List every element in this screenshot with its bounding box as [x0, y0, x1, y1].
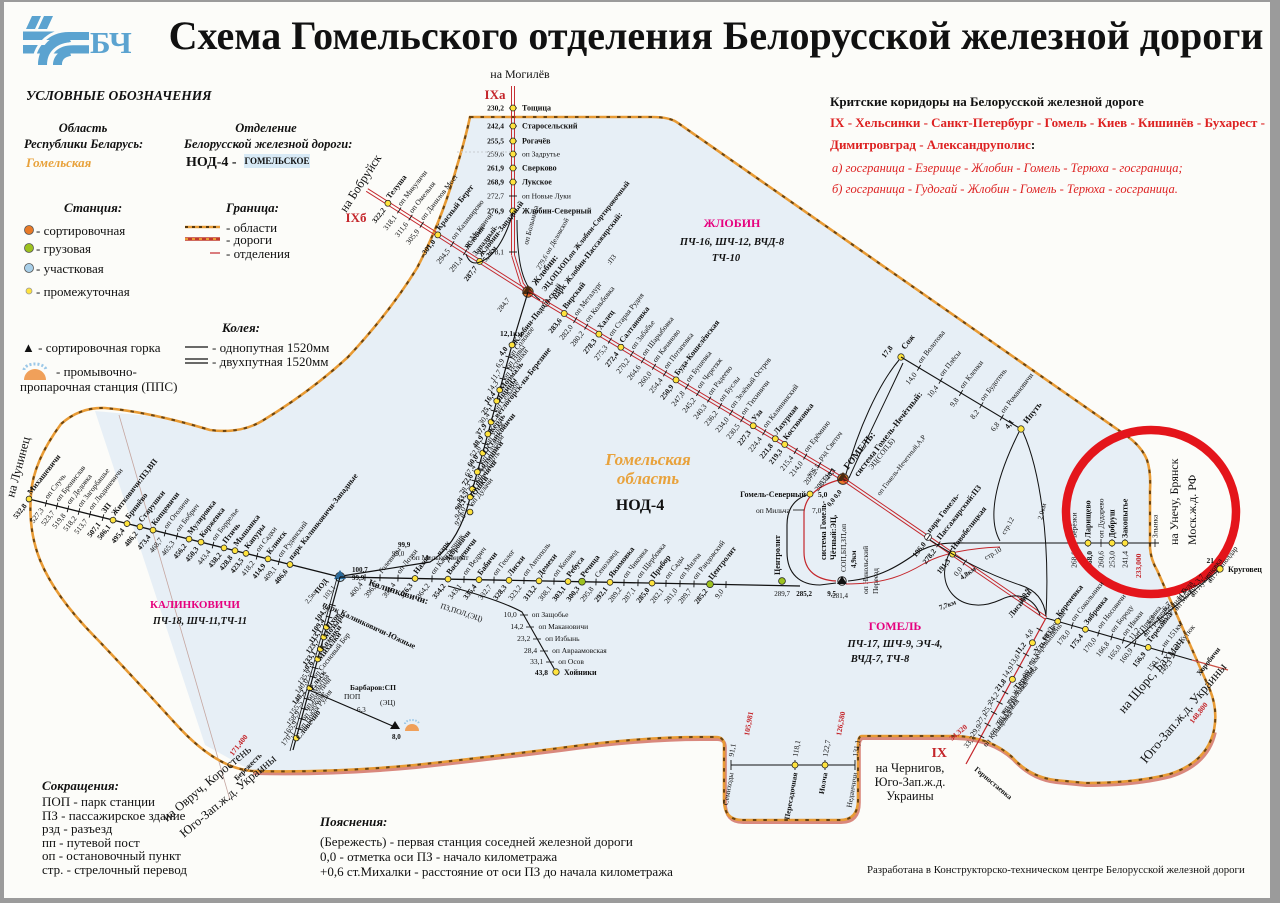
svg-text:99,9: 99,9 [398, 541, 411, 549]
svg-text:оп Мильча: оп Мильча [756, 506, 791, 515]
svg-text:Старосельский: Старосельский [522, 122, 578, 131]
svg-text:оп Новые Луки: оп Новые Луки [522, 192, 571, 201]
svg-text:14,2: 14,2 [510, 622, 523, 631]
svg-text:5,0: 5,0 [818, 490, 828, 499]
svg-text:область: область [617, 469, 680, 488]
svg-text:на Унечу, Брянск: на Унечу, Брянск [1167, 458, 1181, 545]
svg-text:IXб: IXб [346, 210, 367, 225]
svg-text:Закопытье: Закопытье [1121, 498, 1130, 538]
svg-text:253,0: 253,0 [1108, 551, 1117, 568]
svg-text:на Чернигов,: на Чернигов, [876, 761, 945, 775]
svg-text:4,9км: 4,9км [850, 550, 858, 568]
svg-text:230,2: 230,2 [487, 104, 504, 113]
svg-text:12,1км: 12,1км [500, 329, 523, 338]
svg-text:Юго-Зап.ж.д.: Юго-Зап.ж.д. [875, 775, 946, 789]
svg-text:оп Избынь: оп Избынь [545, 634, 580, 643]
svg-text:Гомельская: Гомельская [604, 450, 691, 469]
svg-text:241,4: 241,4 [1121, 551, 1130, 568]
svg-text:ГОМЕЛЬ: ГОМЕЛЬ [869, 619, 922, 633]
svg-text:8,0: 8,0 [392, 733, 401, 741]
svg-text:272,7: 272,7 [487, 192, 504, 201]
svg-text:IXa: IXa [485, 87, 506, 102]
svg-text:Круговец: Круговец [1228, 565, 1262, 574]
svg-text:оп Авраамовская: оп Авраамовская [552, 646, 607, 655]
svg-text:ВЧД-7, ТЧ-8: ВЧД-7, ТЧ-8 [850, 654, 910, 665]
svg-text:ПЧ-17, ШЧ-9, ЭЧ-4,: ПЧ-17, ШЧ-9, ЭЧ-4, [846, 639, 942, 650]
svg-text:ТЧ-10: ТЧ-10 [712, 253, 741, 264]
svg-text:оп Осов: оп Осов [558, 657, 584, 666]
svg-text:255,5: 255,5 [487, 137, 504, 146]
svg-text:33,1: 33,1 [530, 657, 543, 666]
svg-text:система Гомель-: система Гомель- [819, 500, 828, 560]
svg-text:242,4: 242,4 [487, 122, 504, 131]
svg-text:Рогачёв: Рогачёв [522, 137, 551, 146]
svg-text:НОД-4: НОД-4 [616, 497, 664, 514]
svg-text:КАЛИНКОВИЧИ: КАЛИНКОВИЧИ [150, 599, 240, 611]
svg-text:Сверково: Сверково [522, 164, 557, 173]
svg-text:259,6: 259,6 [487, 150, 504, 159]
svg-text:оп Защобье: оп Защобье [532, 610, 569, 619]
svg-text:оп Никольский: оп Никольский [861, 546, 870, 594]
svg-text:43,8: 43,8 [535, 668, 548, 677]
svg-text:Барбаров:СП: Барбаров:СП [350, 683, 396, 692]
svg-text:268,9: 268,9 [487, 178, 504, 187]
svg-text:БЧ: БЧ [90, 25, 132, 60]
svg-text:Гомель-Северный: Гомель-Северный [740, 490, 806, 499]
svg-text:100,7: 100,7 [352, 566, 368, 574]
svg-text:оп Макановичи: оп Макановичи [539, 622, 589, 631]
svg-text:СОП,БП,ЗП,оп: СОП,БП,ЗП,оп [839, 524, 848, 572]
svg-text:Хойники: Хойники [564, 668, 597, 677]
svg-text:Лукское: Лукское [522, 178, 552, 187]
svg-text:23,2: 23,2 [517, 634, 530, 643]
svg-text:Тощица: Тощица [522, 104, 551, 113]
svg-text:оп Дударево: оп Дударево [1097, 498, 1106, 538]
svg-text:оп Задрутье: оп Задрутье [522, 150, 561, 159]
svg-text:289,7: 289,7 [774, 590, 790, 598]
svg-text:ПЧ-16, ШЧ-12, ВЧД-8: ПЧ-16, ШЧ-12, ВЧД-8 [679, 237, 785, 248]
svg-text:6,3: 6,3 [357, 706, 366, 714]
svg-text:28,4: 28,4 [524, 646, 537, 655]
svg-text:Центролит: Центролит [773, 535, 782, 575]
svg-text:281,4: 281,4 [832, 592, 848, 600]
svg-text:на Могилёв: на Могилёв [490, 67, 550, 81]
svg-text:(ЭЦ): (ЭЦ) [380, 698, 396, 707]
svg-text:Моск.ж.д. РФ: Моск.ж.д. РФ [1185, 475, 1199, 545]
svg-text:ПОП: ПОП [344, 692, 361, 701]
svg-text:ЖЛОБИН: ЖЛОБИН [704, 216, 761, 230]
svg-text:ПЧ-18, ШЧ-11,ТЧ-11: ПЧ-18, ШЧ-11,ТЧ-11 [152, 616, 247, 627]
svg-text:233,000: 233,000 [1134, 553, 1143, 578]
svg-text:10,0: 10,0 [504, 610, 517, 619]
svg-text:260,6: 260,6 [1097, 551, 1106, 568]
svg-text:261,9: 261,9 [487, 164, 504, 173]
svg-text:IX: IX [931, 746, 947, 761]
svg-text:Добруш: Добруш [1108, 509, 1117, 538]
svg-text:285,2: 285,2 [796, 590, 812, 598]
svg-text:Украины: Украины [886, 789, 934, 803]
svg-text:Чётный:ЭЦ,: Чётный:ЭЦ, [829, 515, 838, 560]
svg-text:Злынка: Злынка [1151, 514, 1160, 538]
svg-text:21: 21 [1207, 556, 1215, 565]
svg-text:Ларищево: Ларищево [1084, 500, 1093, 538]
